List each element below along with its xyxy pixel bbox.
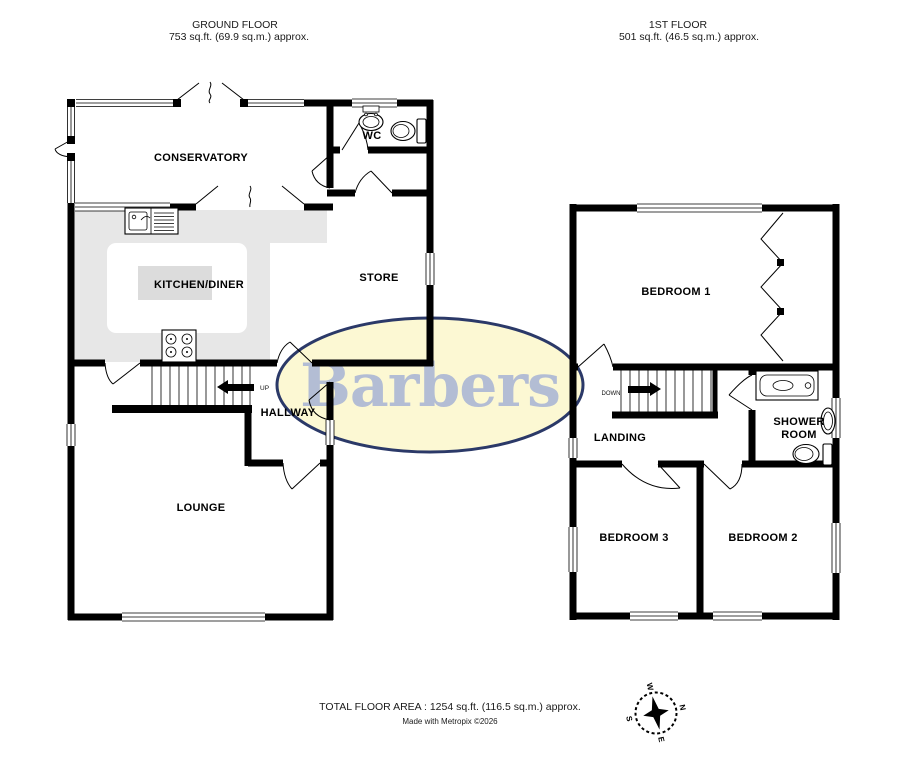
stairs-ground: UP [152, 366, 269, 407]
room-label-lounge: LOUNGE [177, 502, 226, 514]
wc-basin-icon [359, 106, 383, 131]
compass-rose-icon: N E S W [618, 676, 693, 749]
compass-e: E [656, 736, 666, 744]
room-label-shower-line1: SHOWER [773, 416, 824, 428]
first-floor-plan: DOWN BEDROOM 1 LANDING SHOWER ROOM [569, 204, 840, 620]
wc-toilet-icon [391, 119, 426, 143]
metropix-credit: Made with Metropix ©2026 [402, 717, 498, 726]
total-floor-area: TOTAL FLOOR AREA : 1254 sq.ft. (116.5 sq… [319, 701, 581, 713]
ground-floor-title: GROUND FLOOR [192, 19, 278, 31]
floorplan-page: Barbers [0, 0, 900, 759]
room-label-bedroom3: BEDROOM 3 [599, 532, 668, 544]
compass-s: S [624, 715, 634, 723]
wardrobe-icon [761, 213, 784, 361]
compass-n: N [677, 704, 687, 712]
shower-tray-icon [756, 371, 818, 400]
room-label-hallway: HALLWAY [261, 407, 316, 419]
stairs-first: DOWN [602, 368, 716, 412]
room-label-store: STORE [359, 272, 398, 284]
room-label-wc: WC [363, 130, 382, 142]
down-arrow-icon [628, 382, 661, 396]
stairs-down-label: DOWN [602, 391, 621, 397]
room-label-bedroom2: BEDROOM 2 [728, 532, 797, 544]
ground-floor-area: 753 sq.ft. (69.9 sq.m.) approx. [169, 31, 309, 43]
room-label-landing: LANDING [594, 432, 646, 444]
room-label-shower-line2: ROOM [781, 429, 816, 441]
room-label-bedroom1: BEDROOM 1 [641, 286, 710, 298]
floorplan-image: Barbers [0, 0, 900, 759]
room-label-conservatory: CONSERVATORY [154, 152, 248, 164]
first-floor-area: 501 sq.ft. (46.5 sq.m.) approx. [619, 31, 759, 43]
conservatory-glazing [67, 82, 304, 207]
up-arrow-icon [217, 380, 254, 394]
first-floor-title: 1ST FLOOR [649, 19, 708, 31]
opening-arch-top [177, 82, 244, 103]
opening-arch-kitchen [196, 186, 304, 207]
kitchen-sink-icon [125, 208, 178, 234]
shower-toilet-icon [793, 444, 832, 465]
stairs-up-label: UP [260, 385, 269, 392]
hob-icon [162, 330, 196, 362]
compass-w: W [645, 682, 655, 692]
room-label-kitchen-diner: KITCHEN/DINER [154, 279, 244, 291]
